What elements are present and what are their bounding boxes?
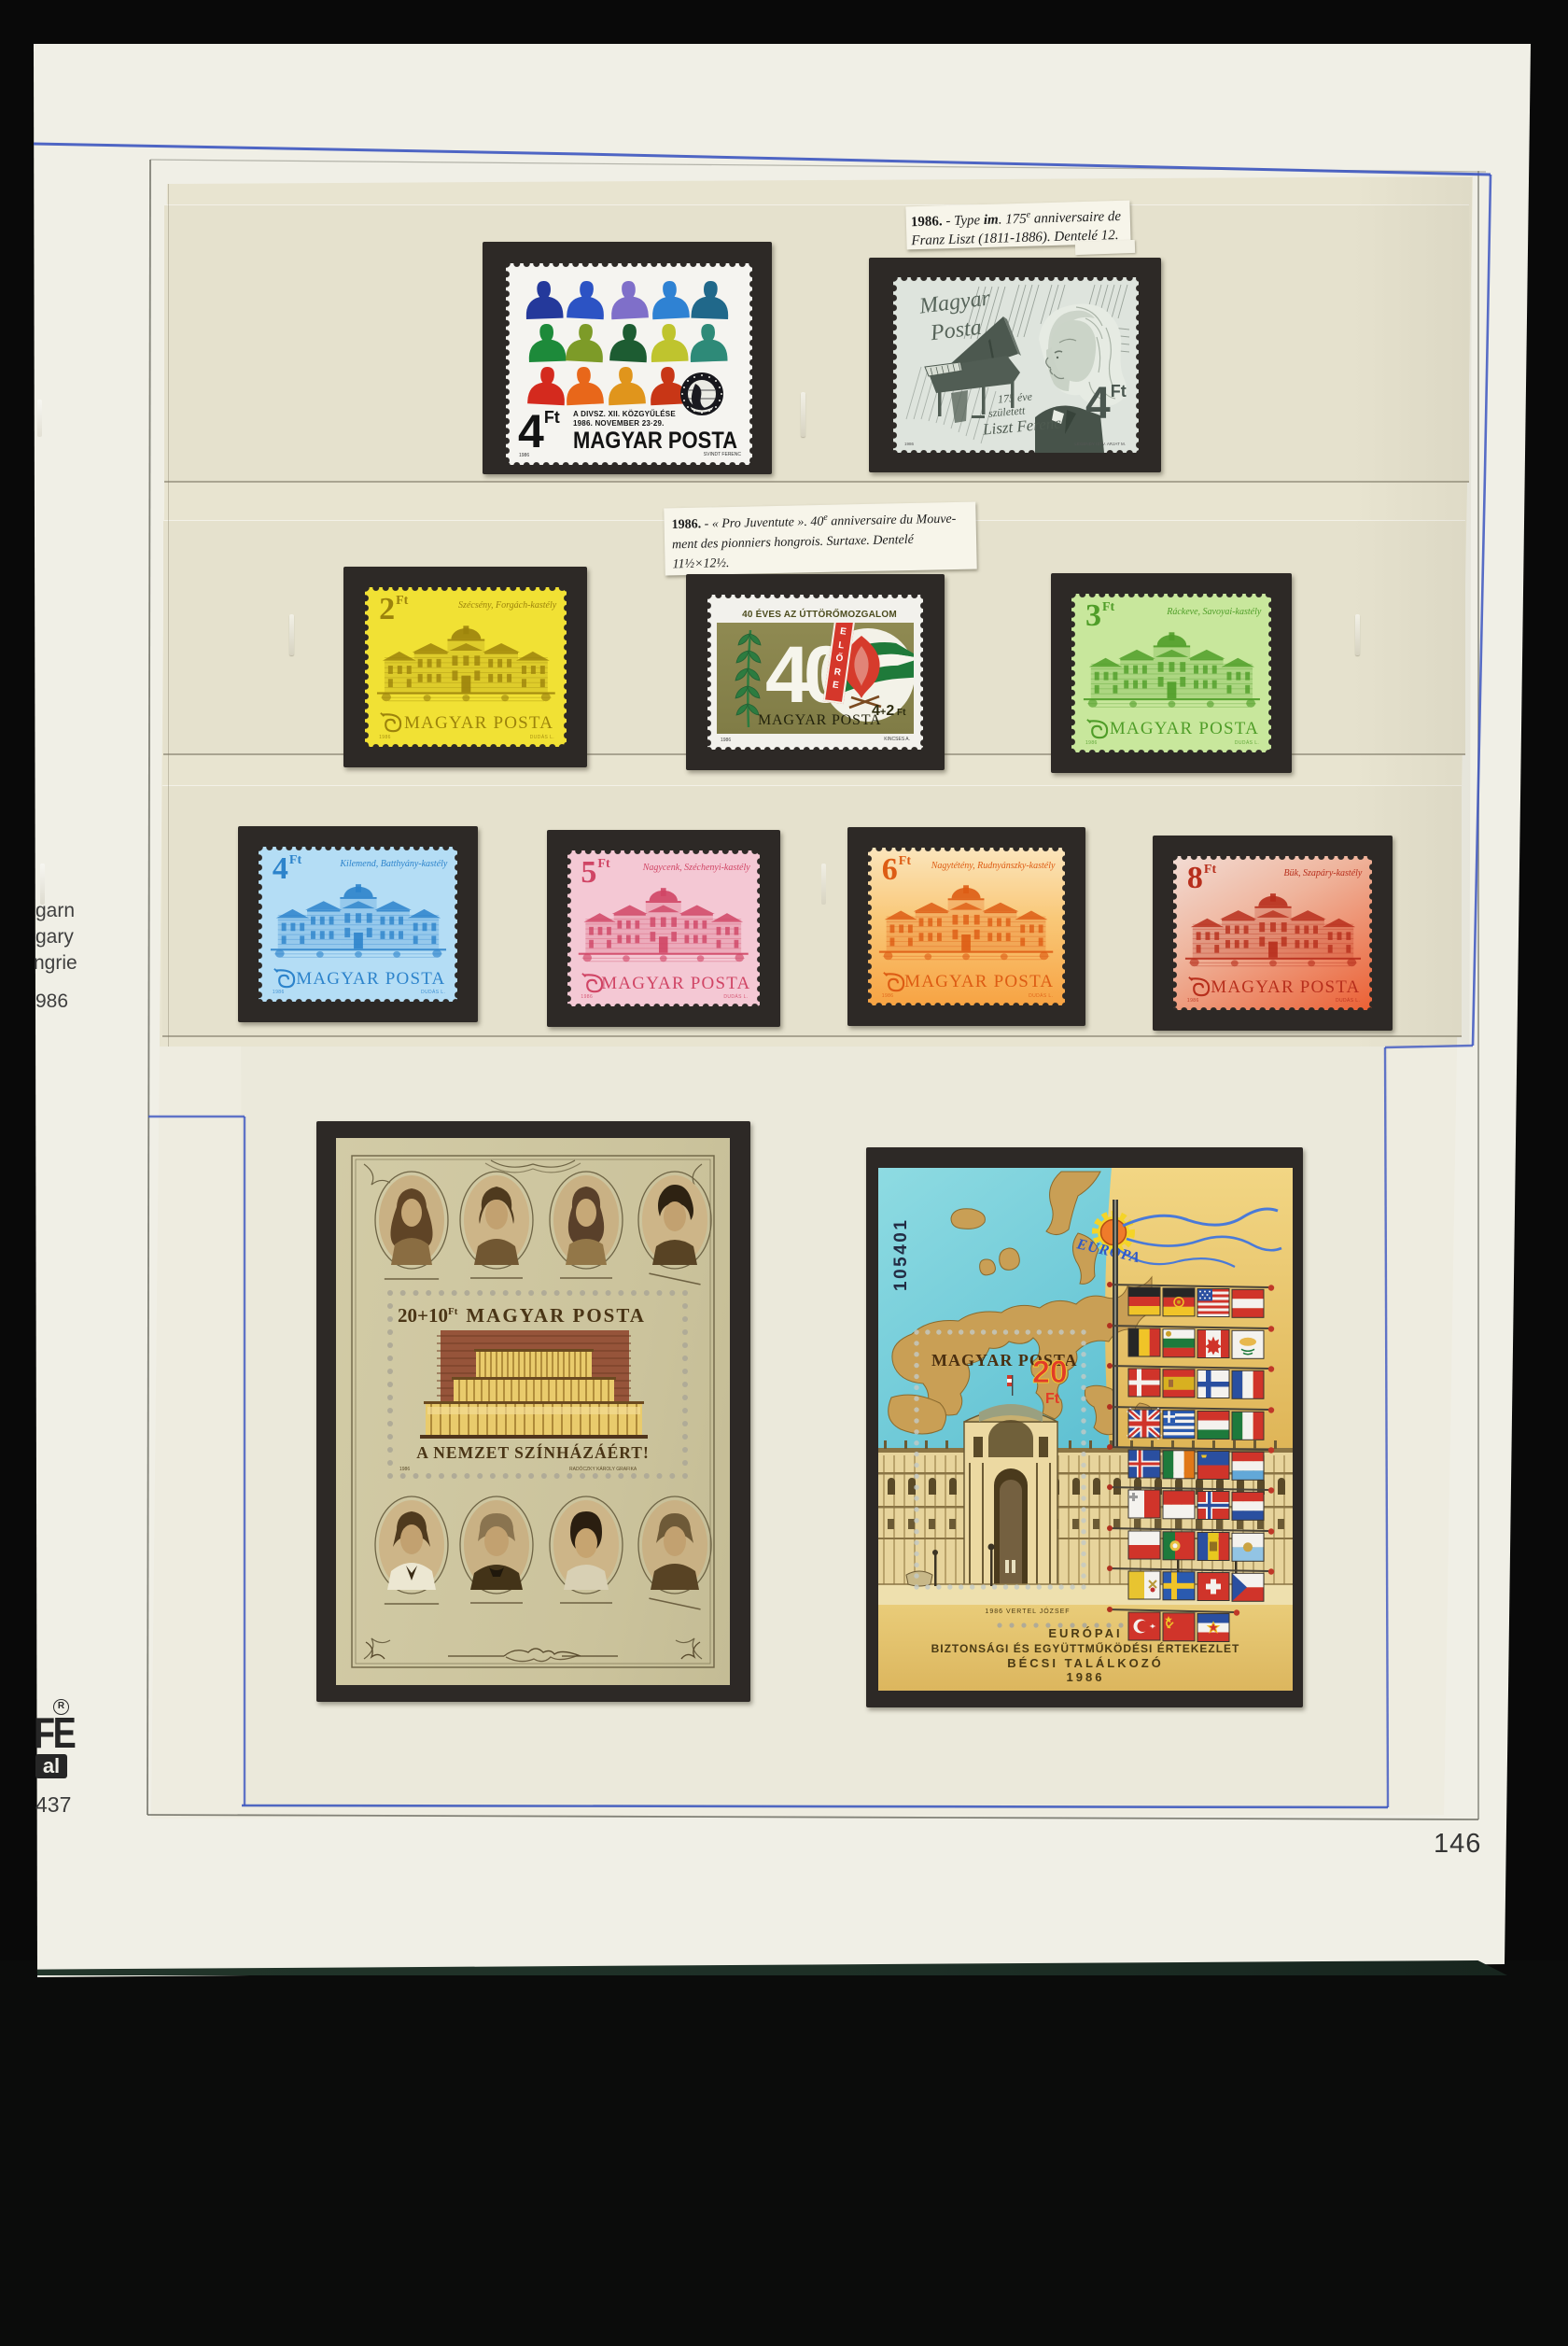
svg-text:1986: 1986 <box>1067 1670 1105 1684</box>
svg-text:1986 VERTEL JÓZSEF: 1986 VERTEL JÓZSEF <box>985 1607 1070 1615</box>
svg-text:105401: 105401 <box>891 1218 911 1291</box>
svg-text:BIZTONSÁGI ÉS EGYÜTTMŰKÖDÉSI É: BIZTONSÁGI ÉS EGYÜTTMŰKÖDÉSI ÉRTEKEZLET <box>931 1641 1240 1655</box>
svg-text:20: 20 <box>1032 1355 1068 1390</box>
svg-text:EURÓPAI: EURÓPAI <box>1048 1626 1122 1640</box>
svg-text:Ft: Ft <box>1045 1391 1060 1407</box>
svg-text:BÉCSI TALÁLKOZÓ: BÉCSI TALÁLKOZÓ <box>1007 1656 1164 1670</box>
